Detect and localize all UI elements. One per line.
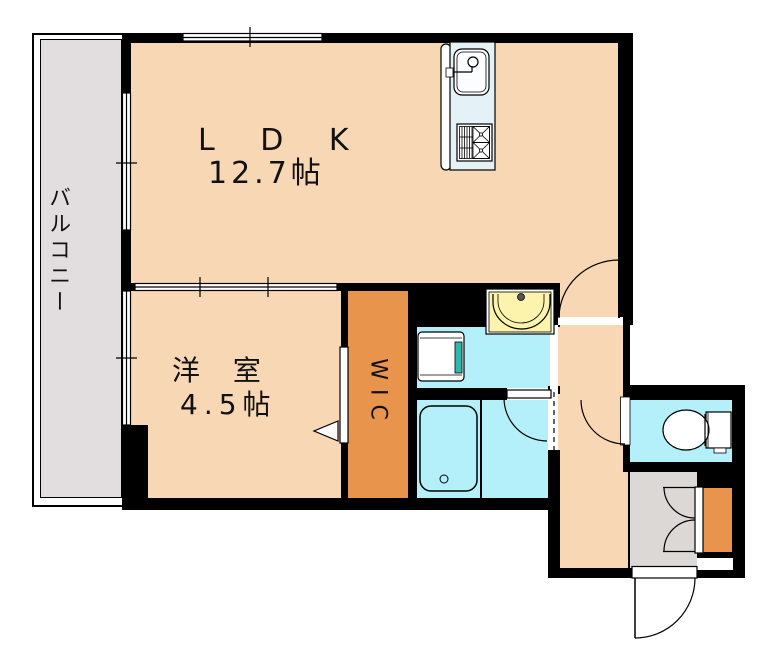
western-room-size-label: 4.5帖 — [180, 390, 277, 419]
wic-label: WIC — [366, 334, 389, 454]
ldk-door — [559, 260, 619, 318]
window-bedroom-balcony — [116, 291, 137, 425]
washing-machine-pan — [418, 332, 464, 381]
bathroom-door — [504, 390, 551, 441]
entrance-door — [632, 567, 697, 639]
washbasin — [486, 289, 554, 334]
wic-sliding-door — [314, 347, 348, 443]
western-room-label: 洋 室 — [172, 356, 263, 385]
fixtures-layer — [0, 0, 770, 663]
shoe-cabinet-doors — [663, 487, 703, 553]
partition-sliding-door — [135, 277, 337, 297]
ldk-size-label: 12.7帖 — [208, 158, 325, 190]
gas-stove — [457, 124, 492, 161]
floor-plan: バルコニー L D K 12.7帖 洋 室 4.5帖 WIC — [0, 0, 770, 663]
ldk-label: L D K — [198, 125, 367, 157]
balcony-label: バルコニー — [46, 186, 69, 376]
window-ldk-balcony — [116, 93, 137, 230]
toilet-door — [581, 397, 630, 445]
toilet-bowl — [663, 410, 731, 453]
bathtub — [420, 406, 477, 491]
window-top — [183, 27, 322, 47]
